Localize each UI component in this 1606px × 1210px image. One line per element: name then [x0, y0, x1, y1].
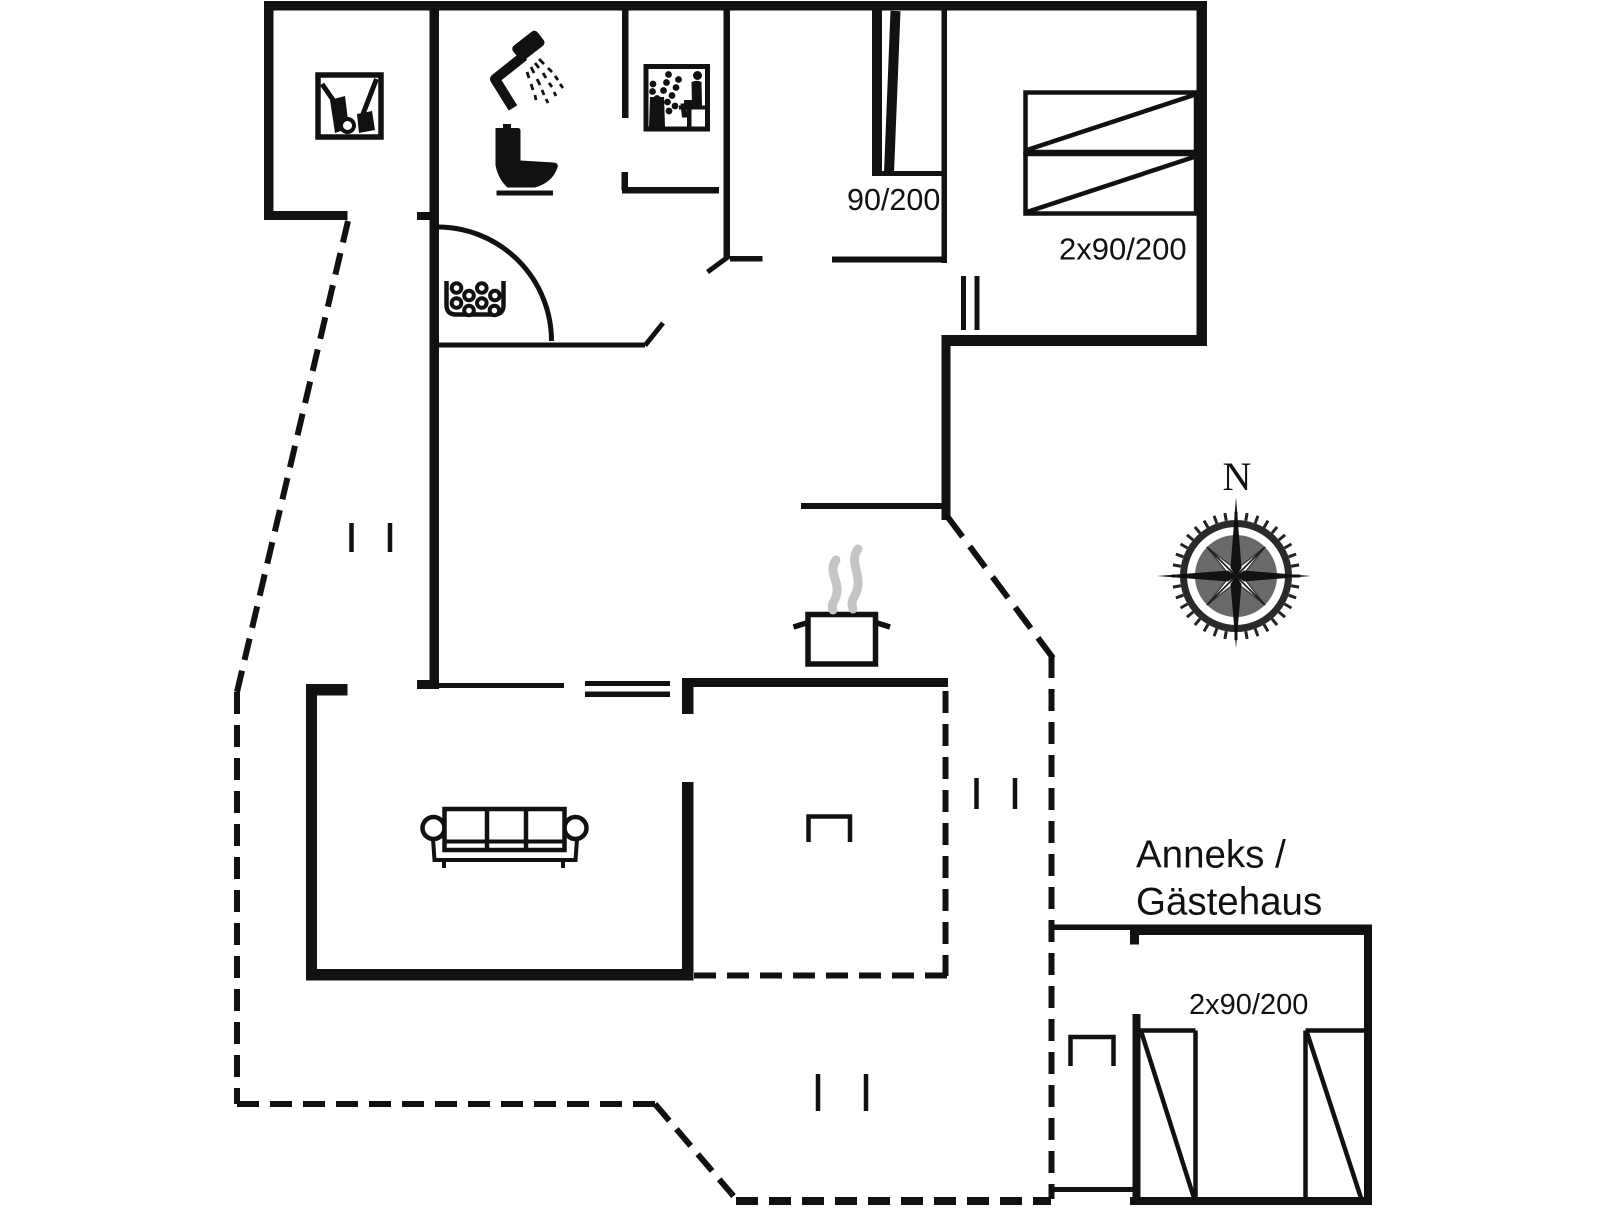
svg-text:2x90/200: 2x90/200	[1059, 232, 1187, 267]
svg-text:Anneks /: Anneks /	[1136, 834, 1286, 877]
svg-text:90/200: 90/200	[847, 183, 940, 217]
svg-text:Gästehaus: Gästehaus	[1136, 881, 1322, 924]
svg-text:N: N	[1223, 454, 1252, 499]
svg-text:2x90/200: 2x90/200	[1189, 989, 1308, 1021]
